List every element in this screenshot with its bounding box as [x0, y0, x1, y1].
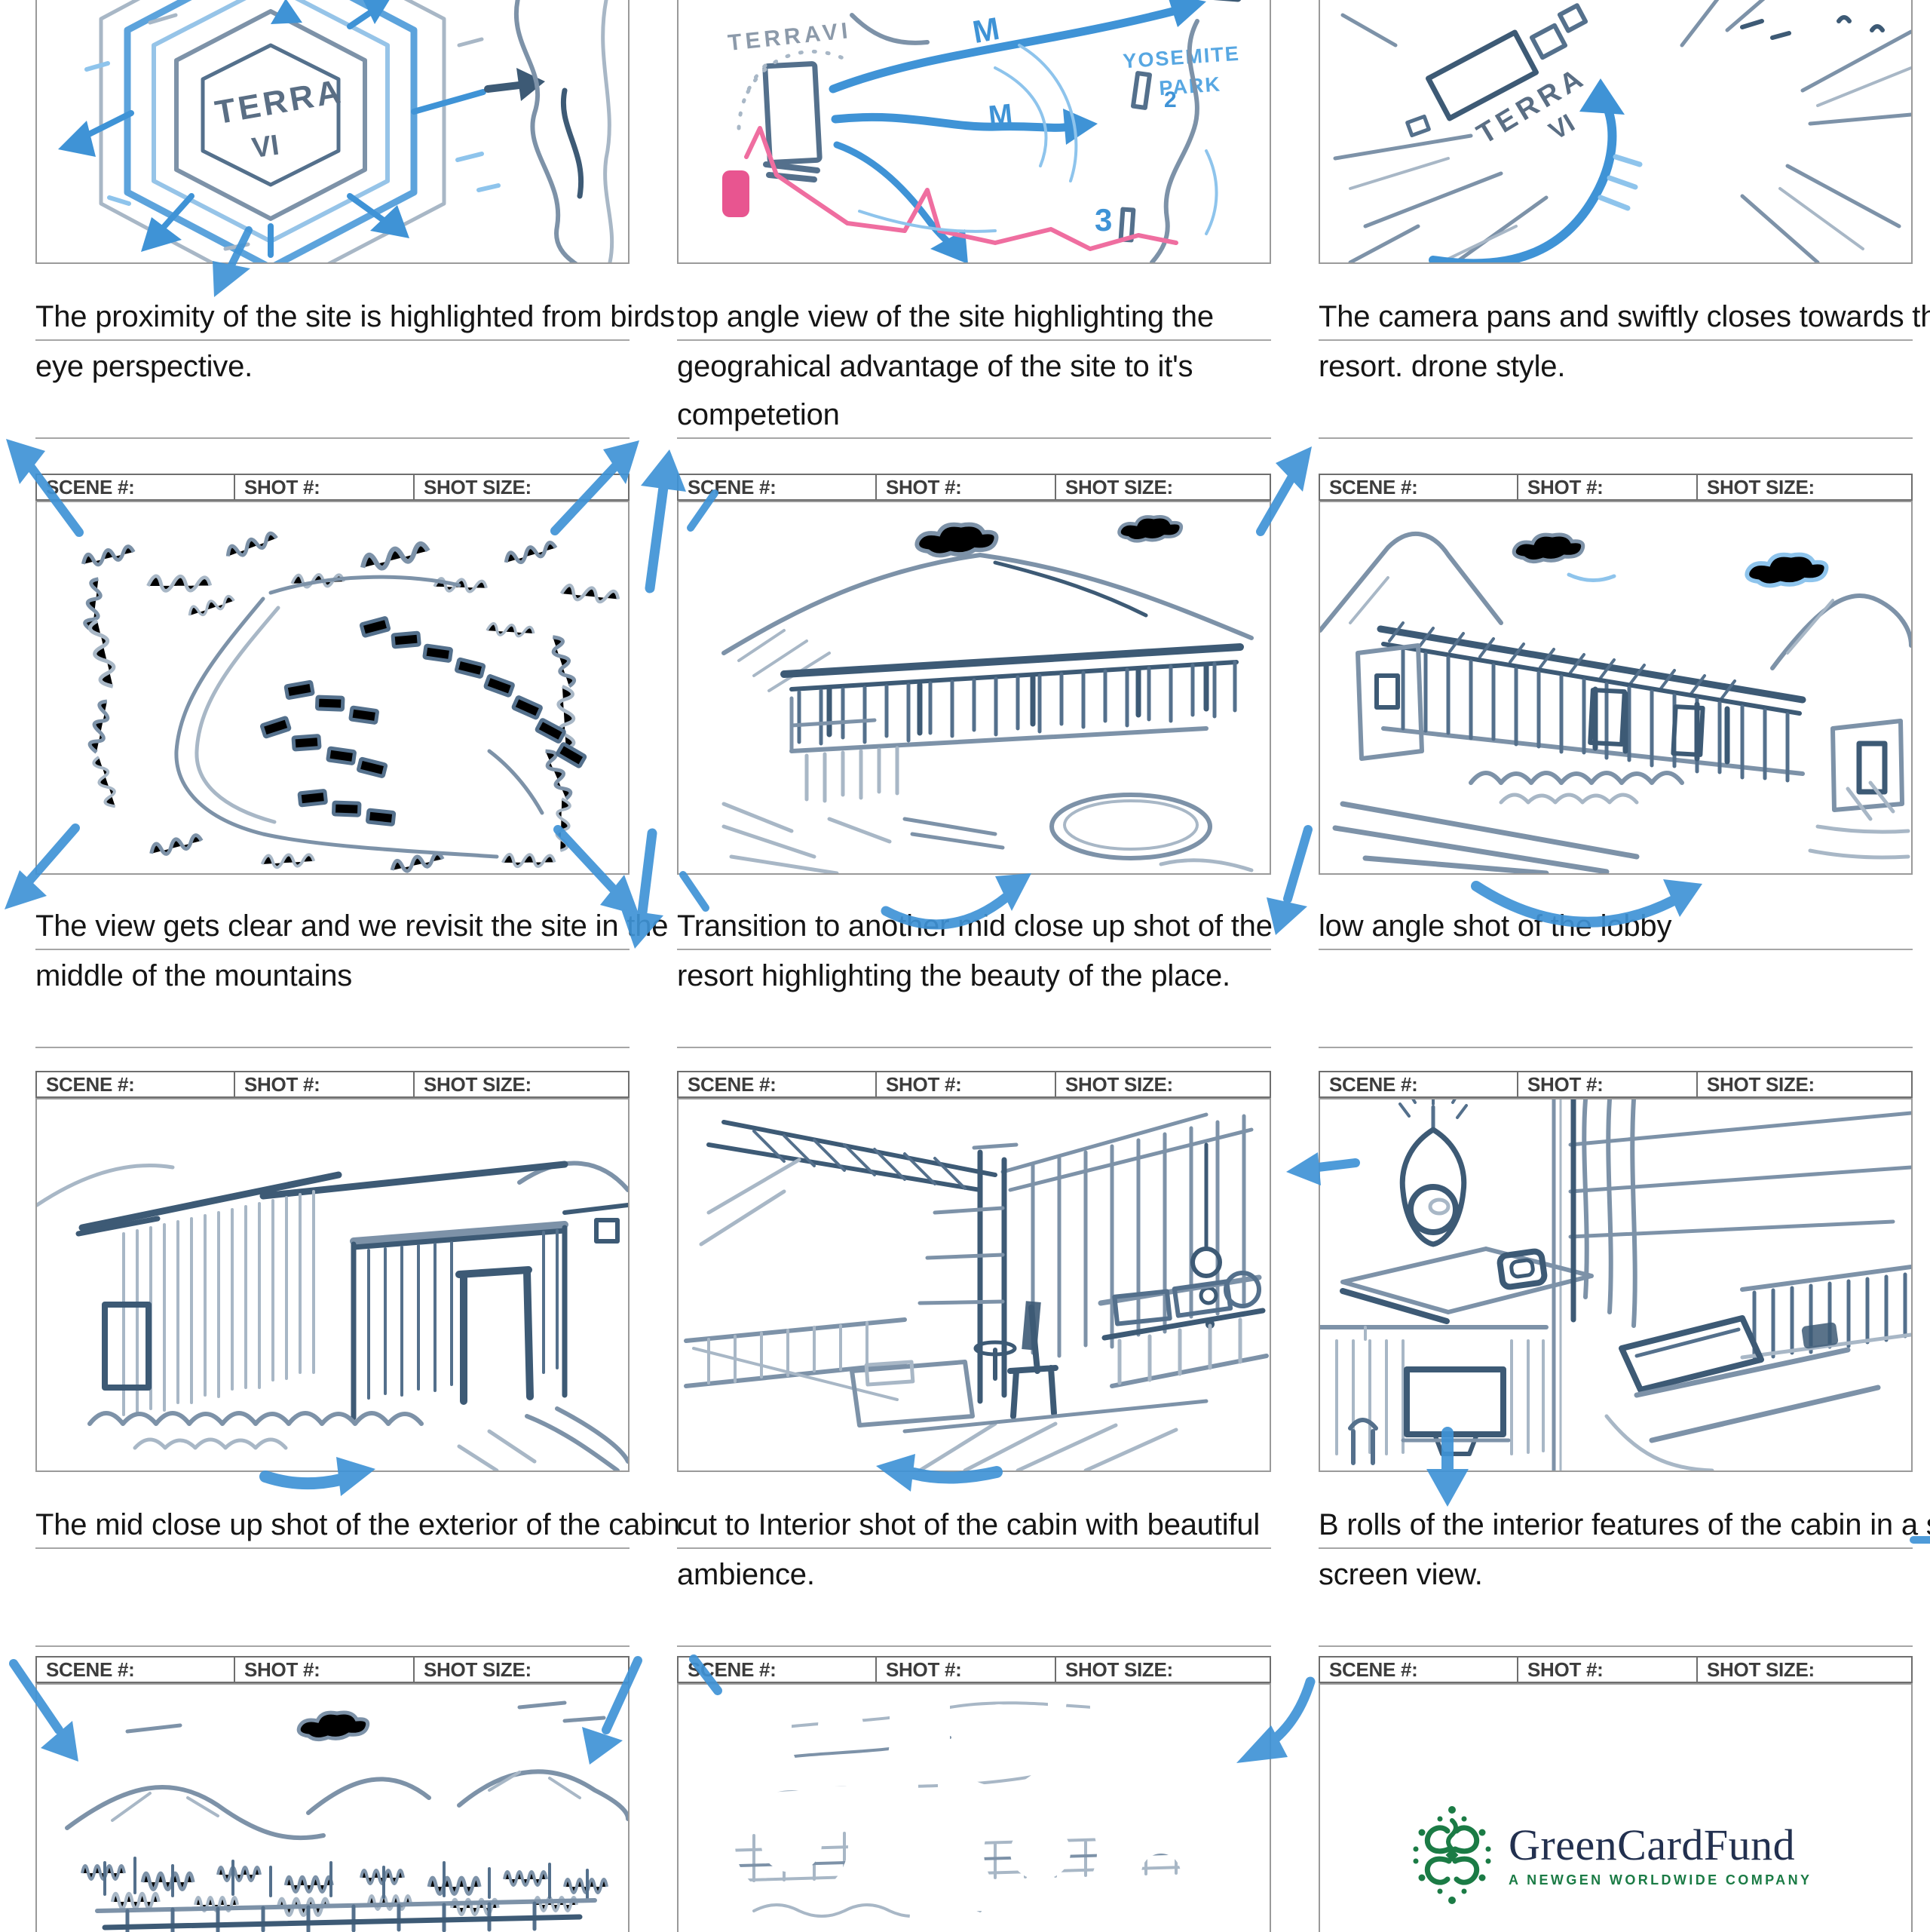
sketch-lobby-lowangle	[1320, 502, 1911, 873]
storyboard-frame-drone-pan: TERRA VI	[1319, 0, 1913, 264]
shot-cell: SHOT #:	[235, 1658, 415, 1682]
shot-size-cell: SHOT SIZE:	[1056, 1658, 1270, 1682]
shot-size-label: SHOT SIZE:	[424, 1073, 532, 1096]
greencardfund-emblem-icon	[1411, 1804, 1493, 1906]
panel-header: SCENE #: SHOT #: SHOT SIZE:	[1319, 474, 1913, 501]
brand-tagline: A NEWGEN WORLDWIDE COMPANY	[1509, 1872, 1812, 1888]
shot-size-label: SHOT SIZE:	[1065, 476, 1173, 499]
scene-label: SCENE #:	[46, 1073, 135, 1096]
shot-label: SHOT #:	[244, 1073, 320, 1096]
caption-line: screen view.	[1319, 1549, 1913, 1602]
caption-line: B rolls of the interior features of the …	[1319, 1504, 1913, 1549]
caption-line: resort highlighting the beauty of the pl…	[677, 950, 1271, 1003]
shot-label: SHOT #:	[1527, 1073, 1603, 1096]
shot-size-label: SHOT SIZE:	[1707, 476, 1815, 499]
storyboard-frame-valley-aerial	[35, 501, 630, 875]
storyboard-frame-interior-broll-split	[1319, 1098, 1913, 1472]
shot-cell: SHOT #:	[235, 475, 415, 499]
shot-cell: SHOT #:	[877, 475, 1056, 499]
shot-cell: SHOT #:	[1518, 475, 1698, 499]
storyboard-frame-cabin-interior	[677, 1098, 1271, 1472]
terra-vi-label: TERRA	[213, 72, 346, 131]
arrow-gap23-r2-down-icon	[1267, 830, 1308, 935]
scene-label: SCENE #:	[688, 1658, 777, 1682]
panel-header: SCENE #: SHOT #: SHOT SIZE:	[677, 1071, 1271, 1098]
shot-cell: SHOT #:	[1518, 1072, 1698, 1096]
shot-size-cell: SHOT SIZE:	[415, 475, 628, 499]
shot-size-cell: SHOT SIZE:	[1056, 1072, 1270, 1096]
shot-size-label: SHOT SIZE:	[424, 476, 532, 499]
shot-cell: SHOT #:	[877, 1658, 1056, 1682]
scene-label: SCENE #:	[1329, 1658, 1418, 1682]
sketch-resort-wideview	[37, 1685, 628, 1932]
shot-label: SHOT #:	[1527, 1658, 1603, 1682]
svg-text:3: 3	[1095, 202, 1112, 238]
caption-line	[1319, 1602, 1913, 1647]
caption-line: The mid close up shot of the exterior of…	[35, 1504, 630, 1549]
scene-label: SCENE #:	[1329, 1073, 1418, 1096]
caption-line	[35, 394, 630, 439]
scene-label: SCENE #:	[688, 1073, 777, 1096]
caption-r1c1: The proximity of the site is highlighted…	[35, 296, 630, 439]
caption-r3c2: cut to Interior shot of the cabin with b…	[677, 1504, 1271, 1647]
shot-label: SHOT #:	[886, 1073, 961, 1096]
svg-text:M: M	[970, 11, 1003, 50]
storyboard-frame-lobby-lowangle	[1319, 501, 1913, 875]
sketch-drone-view: TERRA VI	[1320, 0, 1911, 262]
panel-header: SCENE #: SHOT #: SHOT SIZE:	[677, 1656, 1271, 1683]
caption-line: ambience.	[677, 1549, 1271, 1602]
caption-line: eye perspective.	[35, 341, 630, 394]
caption-line: The view gets clear and we revisit the s…	[35, 905, 630, 950]
shot-size-cell: SHOT SIZE:	[1698, 475, 1911, 499]
storyboard-frame-resort-midshot	[677, 501, 1271, 875]
caption-line: middle of the mountains	[35, 950, 630, 1003]
shot-label: SHOT #:	[886, 476, 961, 499]
shot-size-label: SHOT SIZE:	[424, 1658, 532, 1682]
svg-text:PARK: PARK	[1158, 72, 1221, 100]
scene-cell: SCENE #:	[37, 475, 235, 499]
sketch-resort-midshot	[679, 502, 1270, 873]
caption-r1c2: top angle view of the site highlighting …	[677, 296, 1271, 439]
caption-r2c1: The view gets clear and we revisit the s…	[35, 905, 630, 1048]
scene-cell: SCENE #:	[679, 1658, 877, 1682]
sketch-cabin-interior	[679, 1099, 1270, 1470]
yosemite-park-label: YOSEMITE	[1122, 42, 1240, 73]
shot-size-cell: SHOT SIZE:	[1698, 1072, 1911, 1096]
caption-line: cut to Interior shot of the cabin with b…	[677, 1504, 1271, 1549]
scene-cell: SCENE #:	[37, 1658, 235, 1682]
scene-label: SCENE #:	[688, 476, 777, 499]
caption-line	[35, 1003, 630, 1048]
panel-header: SCENE #: SHOT #: SHOT SIZE:	[35, 1656, 630, 1683]
caption-r1c3: The camera pans and swiftly closes towar…	[1319, 296, 1913, 439]
storyboard-frame-map-topview: TERRAVI M M 3 2 YOSEMITE PARK	[677, 0, 1271, 264]
scene-cell: SCENE #:	[679, 1072, 877, 1096]
greencardfund-logo: GreenCardFund A NEWGEN WORLDWIDE COMPANY	[1411, 1804, 1812, 1906]
caption-line	[35, 1549, 630, 1602]
caption-line	[1319, 394, 1913, 439]
caption-line: competetion	[677, 394, 1271, 439]
sketch-site-map: TERRAVI M M 3 2 YOSEMITE PARK	[679, 0, 1270, 262]
shot-size-cell: SHOT SIZE:	[1056, 475, 1270, 499]
caption-r2c2: Transition to another mid close up shot …	[677, 905, 1271, 1048]
shot-cell: SHOT #:	[877, 1072, 1056, 1096]
caption-line	[1319, 950, 1913, 1003]
caption-line	[35, 1602, 630, 1647]
caption-line	[677, 1602, 1271, 1647]
scene-cell: SCENE #:	[1320, 475, 1518, 499]
storyboard-frame-logo-reveal	[677, 1683, 1271, 1932]
sketch-interior-broll	[1320, 1099, 1911, 1470]
caption-r3c1: The mid close up shot of the exterior of…	[35, 1504, 630, 1647]
storyboard-frame-resort-wideview	[35, 1683, 630, 1932]
shot-size-cell: SHOT SIZE:	[1698, 1658, 1911, 1682]
svg-text:VI: VI	[1544, 109, 1579, 146]
sketch-logo-reveal	[679, 1685, 1270, 1932]
caption-r3c3: B rolls of the interior features of the …	[1319, 1504, 1913, 1647]
caption-line: resort. drone style.	[1319, 341, 1913, 394]
sketch-valley-aerial	[37, 502, 628, 873]
caption-r2c3: low angle shot of the lobby	[1319, 905, 1913, 1048]
panel-header: SCENE #: SHOT #: SHOT SIZE:	[1319, 1656, 1913, 1683]
shot-label: SHOT #:	[1527, 476, 1603, 499]
caption-line: The proximity of the site is highlighted…	[35, 296, 630, 341]
shot-size-label: SHOT SIZE:	[1707, 1073, 1815, 1096]
caption-line	[1319, 1003, 1913, 1048]
shot-cell: SHOT #:	[1518, 1658, 1698, 1682]
svg-text:M: M	[987, 99, 1014, 133]
shot-size-cell: SHOT SIZE:	[415, 1658, 628, 1682]
scene-cell: SCENE #:	[1320, 1072, 1518, 1096]
shot-label: SHOT #:	[244, 1658, 320, 1682]
scene-label: SCENE #:	[1329, 476, 1418, 499]
storyboard-frame-cabin-exterior	[35, 1098, 630, 1472]
scene-cell: SCENE #:	[1320, 1658, 1518, 1682]
shot-size-cell: SHOT SIZE:	[415, 1072, 628, 1096]
panel-header: SCENE #: SHOT #: SHOT SIZE:	[1319, 1071, 1913, 1098]
caption-line: geograhical advantage of the site to it'…	[677, 341, 1271, 394]
brand-name: GreenCardFund	[1509, 1823, 1812, 1868]
shot-size-label: SHOT SIZE:	[1707, 1658, 1815, 1682]
sketch-cabin-exterior	[37, 1099, 628, 1470]
storyboard-frame-birdseye-site: TERRA VI	[35, 0, 630, 264]
shot-label: SHOT #:	[886, 1658, 961, 1682]
scene-label: SCENE #:	[46, 1658, 135, 1682]
shot-size-label: SHOT SIZE:	[1065, 1073, 1173, 1096]
caption-line: low angle shot of the lobby	[1319, 905, 1913, 950]
storyboard-frame-brand-endcard: GreenCardFund A NEWGEN WORLDWIDE COMPANY	[1319, 1683, 1913, 1932]
shot-cell: SHOT #:	[235, 1072, 415, 1096]
caption-line: top angle view of the site highlighting …	[677, 296, 1271, 341]
caption-line	[677, 1003, 1271, 1048]
panel-header: SCENE #: SHOT #: SHOT SIZE:	[35, 474, 630, 501]
scene-cell: SCENE #:	[37, 1072, 235, 1096]
scene-label: SCENE #:	[46, 476, 135, 499]
panel-header: SCENE #: SHOT #: SHOT SIZE:	[35, 1071, 630, 1098]
scene-cell: SCENE #:	[679, 475, 877, 499]
caption-line: Transition to another mid close up shot …	[677, 905, 1271, 950]
caption-line: The camera pans and swiftly closes towar…	[1319, 296, 1913, 341]
sketch-birdseye-hexagon: TERRA VI	[37, 0, 628, 262]
shot-size-label: SHOT SIZE:	[1065, 1658, 1173, 1682]
shot-label: SHOT #:	[244, 476, 320, 499]
panel-header: SCENE #: SHOT #: SHOT SIZE:	[677, 474, 1271, 501]
svg-text:VI: VI	[250, 130, 280, 165]
terra-vi-map-label: TERRAVI	[727, 18, 853, 56]
